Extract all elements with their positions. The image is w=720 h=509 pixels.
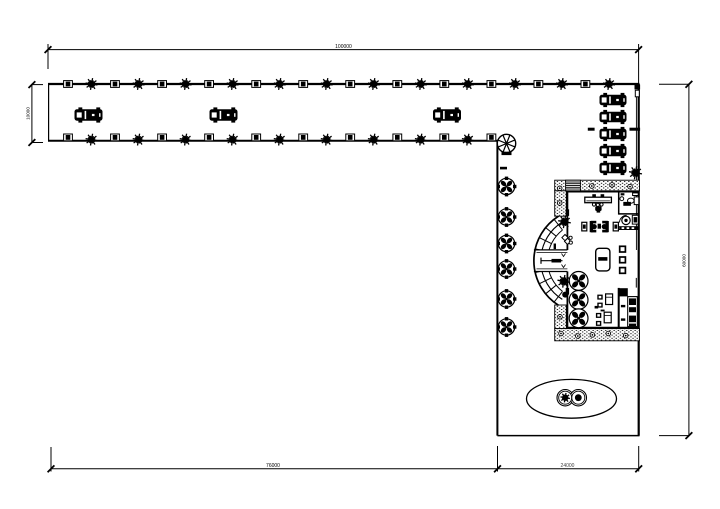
svg-text:60000: 60000 (682, 254, 687, 267)
svg-text:10000: 10000 (26, 107, 31, 120)
svg-text:24000: 24000 (561, 463, 575, 469)
svg-text:100000: 100000 (335, 44, 352, 50)
svg-text:76000: 76000 (266, 463, 280, 469)
